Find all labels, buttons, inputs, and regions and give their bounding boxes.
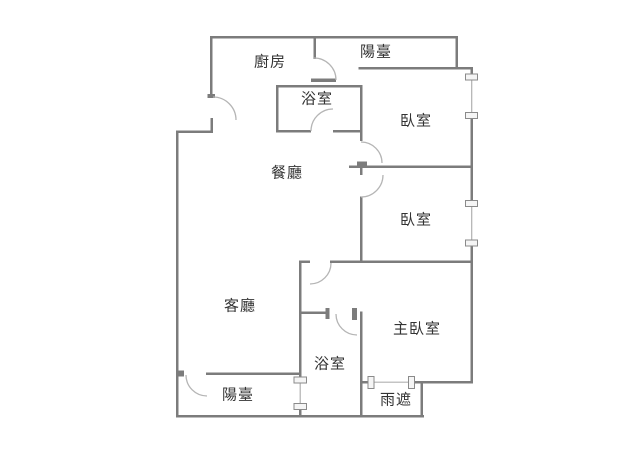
wall-right-b [471,117,474,204]
door-arcs [186,58,383,396]
wall-bath1-left [276,85,279,133]
wall-balcony2-divider [206,373,300,376]
window-cap [294,404,307,410]
wall-balcony-right [456,36,459,69]
room-label-kitchen: 廚房 [254,51,286,72]
window-cap [409,377,415,389]
wall-bath1-bottom-left [276,130,311,133]
room-label-bathroom-top: 浴室 [301,88,333,109]
wall-balcony2-jamb [176,371,184,377]
wall-bath2-top [299,312,328,315]
room-label-balcony-top: 陽臺 [360,41,392,62]
window-cap [466,201,478,207]
room-label-bedroom-1: 臥室 [400,110,432,131]
wall-bath2-right [360,312,363,418]
window-cap [294,377,307,383]
wall-bedroom1-left [360,85,363,141]
wall-right-c [471,245,474,383]
door-balcony-top [314,58,336,80]
door-balcony-bottom [186,375,207,396]
wall-bath1-bottom-right [333,130,363,133]
room-label-balcony-bottom: 陽臺 [222,384,254,405]
floor-plan: 廚房 陽臺 浴室 臥室 餐廳 臥室 客廳 主臥室 浴室 陽臺 雨遮 [0,0,640,461]
door-bedroom1 [361,142,382,163]
wall-kitchen-left-upper [210,36,213,97]
window-cap [368,377,374,389]
door-bathroom-top [311,109,333,131]
wall-bedrooms-divider [349,166,473,169]
wall-rain-shelter-right [421,383,424,417]
room-label-rain-shelter: 雨遮 [380,389,412,410]
wall-living-bath-upper [299,261,302,381]
door-hallway [310,263,331,284]
wall-kitchen-balcony-divider [314,36,317,59]
room-label-bathroom-bottom: 浴室 [314,353,346,374]
wall-master-top [330,261,473,264]
wall-bath2-jamb-right [352,308,357,320]
wall-bedroom1-top [359,67,474,70]
wall-top [210,36,458,39]
room-label-living-room: 客廳 [224,295,256,316]
door-kitchen [213,97,236,120]
wall-bedroom2-left-lower [360,197,363,264]
window-cap [466,240,478,246]
wall-divider-jamb [357,162,367,166]
room-label-master-bedroom: 主臥室 [393,318,441,339]
room-label-dining-room: 餐廳 [271,162,303,183]
floor-plan-drawing [0,0,640,461]
room-label-bedroom-2: 臥室 [400,209,432,230]
wall-left-step [176,131,213,134]
wall-balcony-door-jamb [311,79,336,83]
window-cap [466,113,478,119]
wall-bath2-jamb-left [326,308,330,319]
window-cap [466,74,478,80]
wall-bedroom2-left-upper [360,168,363,175]
door-bedroom2 [361,175,383,197]
